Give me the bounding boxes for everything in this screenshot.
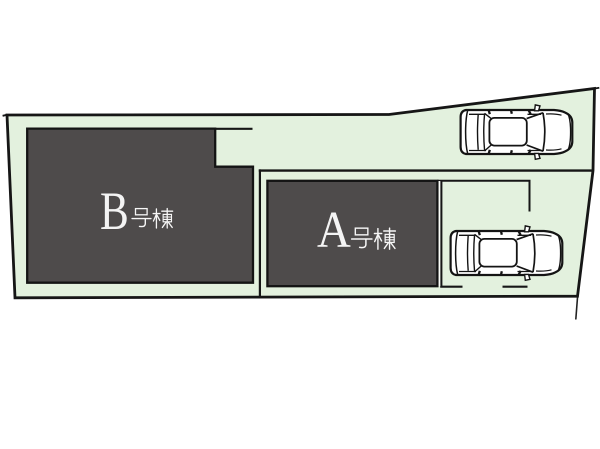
svg-text:A: A [317,201,351,259]
svg-text:B: B [100,180,129,241]
